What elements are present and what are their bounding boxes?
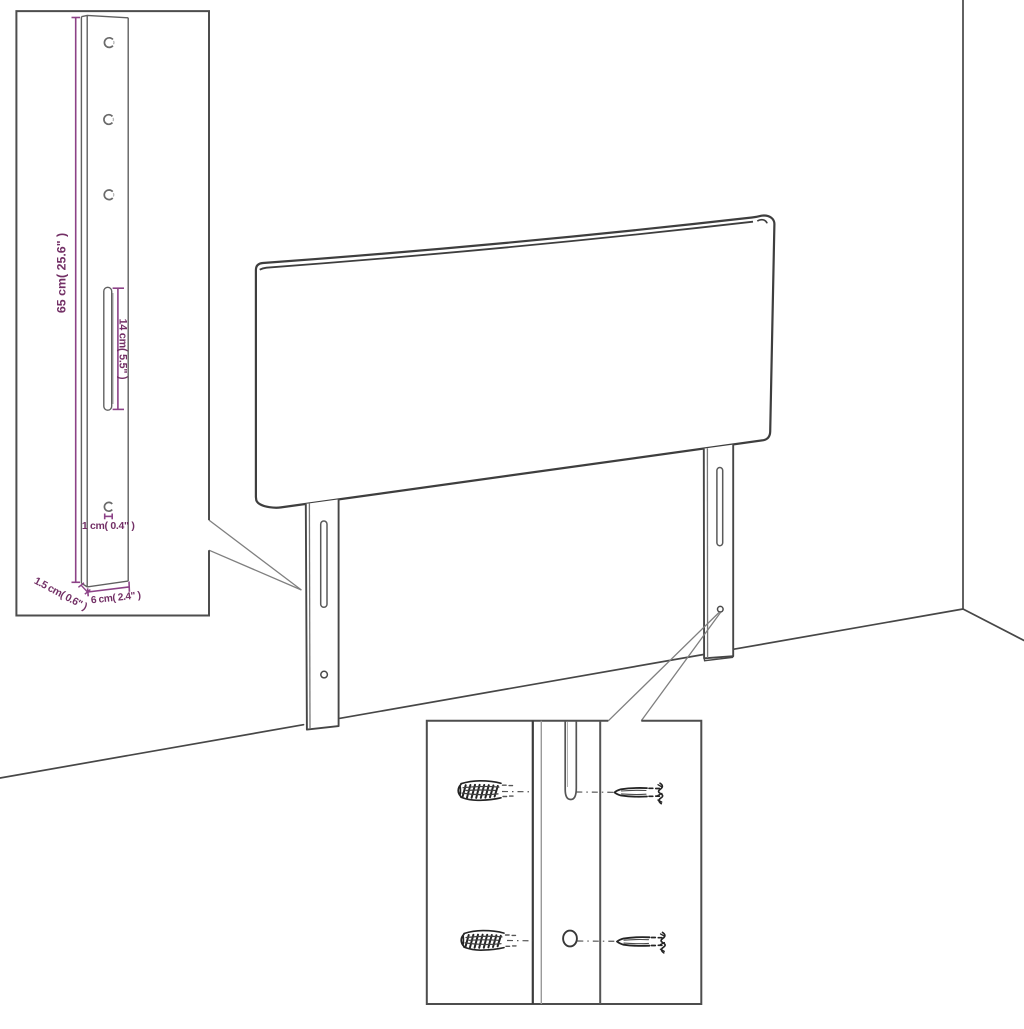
svg-text:65 cm( 25.6" ): 65 cm( 25.6" ) [55, 233, 69, 313]
svg-text:14 cm( 5.5" ): 14 cm( 5.5" ) [116, 319, 128, 380]
svg-text:1 cm( 0.4" ): 1 cm( 0.4" ) [82, 520, 135, 532]
